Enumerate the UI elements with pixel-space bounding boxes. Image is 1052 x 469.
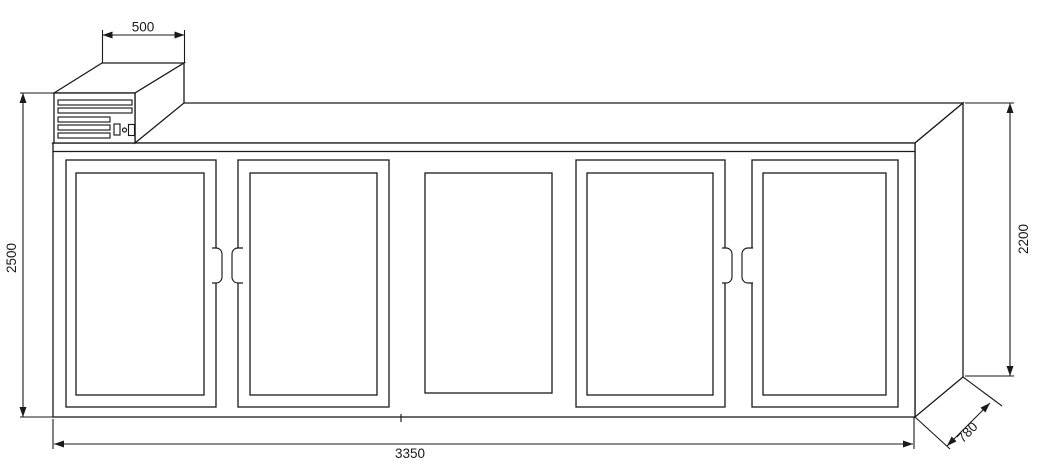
dimension-cabinet-width: 3350 xyxy=(53,417,914,461)
dimension-label: 780 xyxy=(954,419,980,446)
handle-door-1 xyxy=(212,248,222,283)
dimension-label: 2200 xyxy=(1016,224,1031,254)
cabinet-body xyxy=(53,103,963,417)
technical-drawing: 500 2500 2200 3350 780 xyxy=(0,0,1052,469)
dimension-label: 500 xyxy=(132,20,155,35)
dimension-overall-height: 2500 xyxy=(4,93,54,417)
handle-door-5 xyxy=(742,248,753,283)
drawing-canvas: 500 2500 2200 3350 780 xyxy=(0,0,1052,469)
extension-line xyxy=(915,417,950,449)
dimension-label: 2500 xyxy=(4,243,19,273)
dimension-label: 3350 xyxy=(395,446,425,461)
cabinet-side-face xyxy=(915,103,963,417)
dimension-condenser-width: 500 xyxy=(103,20,185,64)
cabinet-top-face xyxy=(53,103,963,143)
extension-line xyxy=(963,377,1002,406)
dimension-cabinet-height: 2200 xyxy=(965,103,1031,376)
handle-door-4 xyxy=(722,248,732,283)
cabinet-front-face xyxy=(53,143,915,417)
handle-door-2 xyxy=(232,248,243,283)
